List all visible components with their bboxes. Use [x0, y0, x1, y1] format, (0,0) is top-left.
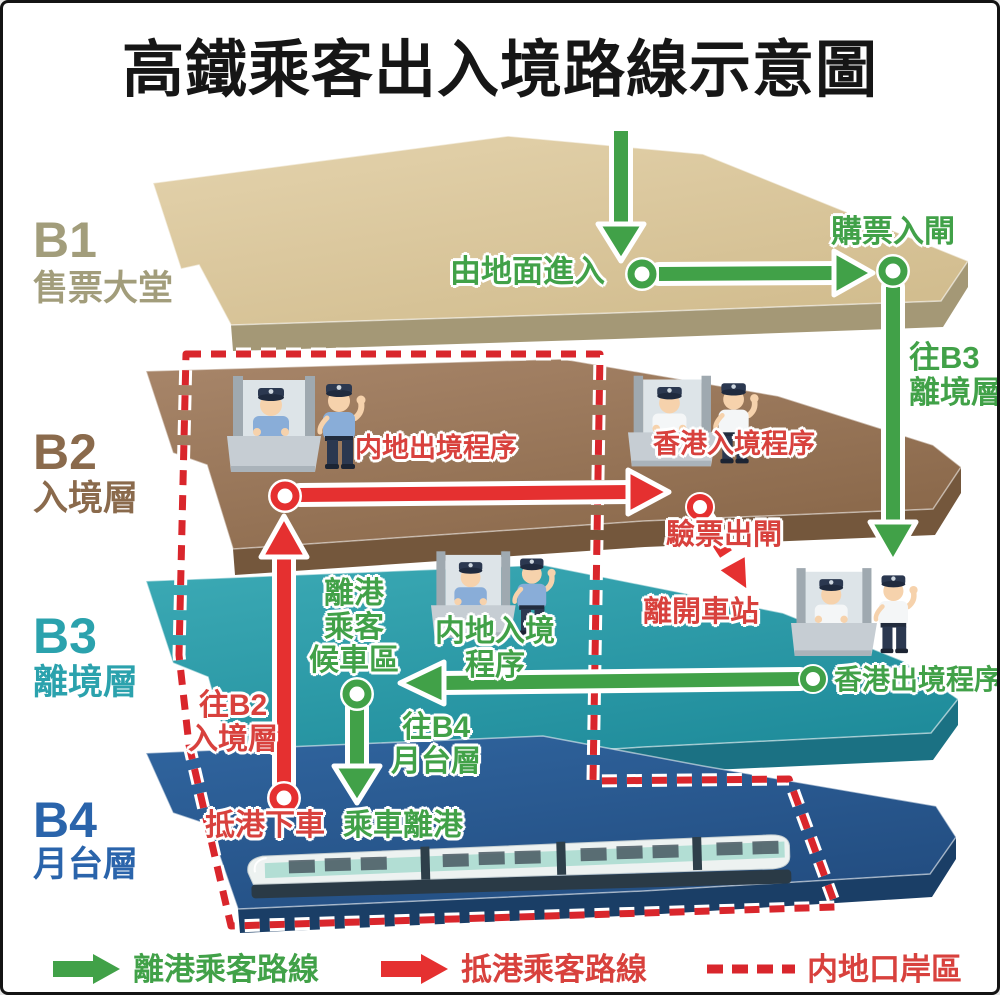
label-hk-arrival: 香港入境程序	[653, 429, 815, 459]
node-buy-ticket-ring	[882, 260, 904, 282]
legend-departure-label: 離港乘客路線	[133, 954, 319, 985]
label-leave-station: 離開車站	[643, 596, 759, 628]
node-arrival-alight-ring	[273, 787, 295, 809]
node-hk-departure-ring	[803, 669, 823, 689]
legend-item-port-area: 内地口岸區	[705, 953, 962, 985]
label-mainland-arrival: 内地入境 程序	[435, 615, 555, 682]
label-arrival-alight: 抵港下車	[205, 809, 325, 843]
label-to-b3: 往B3 離境層	[909, 341, 1000, 410]
label-buy-ticket-enter-gate: 購票入閘	[831, 215, 955, 250]
node-enter-ground-ring	[631, 263, 653, 285]
label-mainland-arrival-line1: 内地入境	[435, 615, 555, 649]
node-waiting-area-ring	[346, 683, 368, 705]
floor-b2-code: B2	[33, 427, 97, 477]
floor-b3-code: B3	[33, 611, 97, 661]
red-arrow-icon	[381, 953, 449, 985]
floor-b4-code: B4	[33, 795, 97, 845]
green-arrow-icon	[53, 953, 121, 985]
floor-b2-name: 入境層	[33, 481, 138, 516]
red-dashed-line-icon	[705, 953, 797, 985]
label-mainland-arrival-line2: 程序	[435, 649, 555, 683]
label-departure-waiting-line1: 離港	[309, 577, 399, 611]
floor-b4-name: 月台層	[33, 847, 138, 882]
node-ticket-check-ring	[690, 497, 710, 517]
floor-b3-name: 離境層	[33, 665, 138, 700]
legend-item-departure: 離港乘客路線	[53, 953, 319, 985]
label-departure-waiting: 離港 乘客 候車區	[309, 577, 399, 678]
label-hk-departure: 香港出境程序	[834, 664, 1000, 695]
label-ticket-check-exit-gate: 驗票出閘	[666, 519, 782, 551]
label-board-train-depart: 乘車離港	[343, 809, 463, 843]
label-to-b2-line1: 往B2	[188, 689, 278, 723]
node-b2-arrival-ring	[274, 485, 296, 507]
label-to-b3-line1: 往B3	[909, 341, 1000, 376]
floor-b1-name: 售票大堂	[33, 271, 173, 306]
legend-item-arrival: 抵港乘客路線	[381, 953, 647, 985]
label-to-b2: 往B2 入境層	[188, 689, 278, 756]
legend-port-area-label: 内地口岸區	[807, 954, 962, 985]
label-departure-waiting-line2: 乘客	[309, 611, 399, 645]
label-to-b2-line2: 入境層	[188, 723, 278, 757]
label-to-b4: 往B4 月台層	[391, 711, 481, 778]
label-departure-waiting-line3: 候車區	[309, 644, 399, 678]
counter-hk-departure	[791, 568, 918, 656]
label-mainland-departure: 内地出境程序	[355, 433, 517, 463]
station-diagram	[3, 3, 1000, 995]
label-to-b4-line2: 月台層	[391, 745, 481, 779]
legend-arrival-label: 抵港乘客路線	[461, 954, 647, 985]
diagram-canvas: 高鐵乘客出入境路線示意圖	[0, 0, 1000, 995]
floor-b1-code: B1	[33, 215, 97, 265]
counter-mainland-departure	[227, 376, 366, 472]
label-enter-from-ground: 由地面進入	[450, 255, 605, 290]
label-to-b3-line2: 離境層	[909, 376, 1000, 411]
label-to-b4-line1: 往B4	[391, 711, 481, 745]
